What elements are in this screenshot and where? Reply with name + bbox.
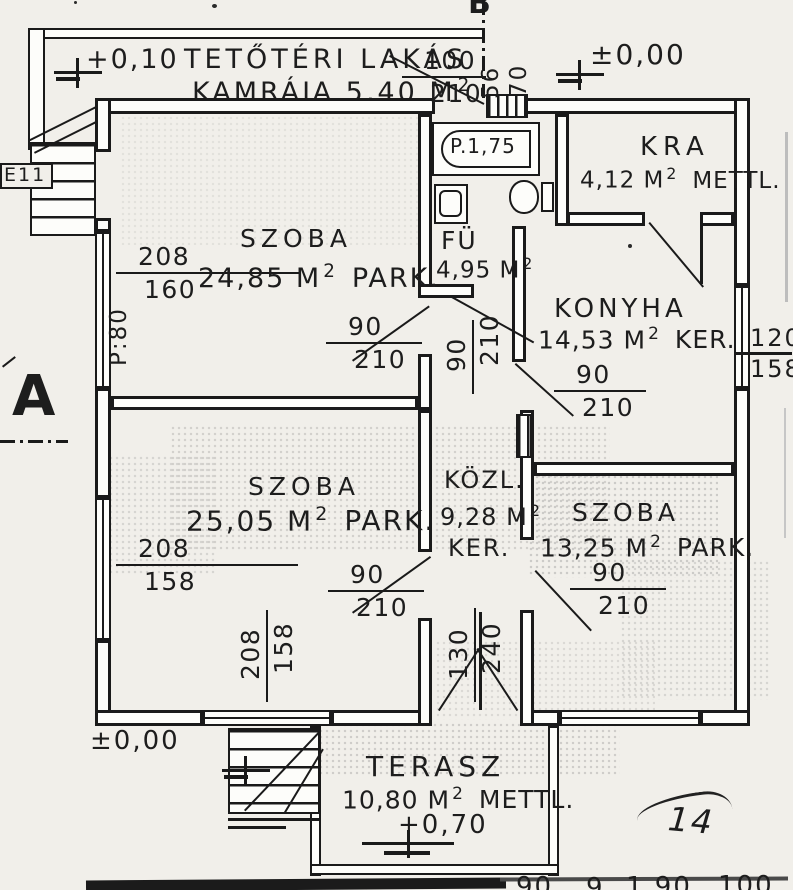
stair-edge-line [228, 818, 320, 821]
wall-segment [331, 710, 432, 726]
wall-segment [418, 618, 432, 726]
wall-segment [534, 462, 734, 476]
room-name-kozl: KÖZL. [444, 468, 525, 493]
footer-fragment: 1,90 [626, 874, 692, 890]
room-name-szoba3: SZOBA [572, 500, 679, 526]
scan-speck [628, 244, 632, 248]
dimension-label-parapet: P:80 [106, 307, 132, 366]
door-leaf [700, 222, 703, 284]
scan-bottom-band [86, 878, 506, 890]
dimension-label-entry-step: 56 [478, 66, 504, 99]
window-symbol [734, 286, 750, 388]
section-line-a [0, 440, 68, 443]
room-area-szoba1: 24,85 M2PARK. [198, 262, 440, 293]
wall-segment [95, 98, 111, 152]
room-name-szoba2: SZOBA [248, 474, 360, 500]
wall-segment [95, 388, 111, 498]
scan-edge-artifact [784, 408, 786, 538]
room-name-kra: KRA [640, 134, 710, 161]
dimension-label-door: 90210 [444, 320, 502, 394]
wall-segment [700, 710, 750, 726]
stairs-top-left [30, 142, 96, 236]
level-value: +0,10 [86, 46, 179, 74]
room-area-kra: 4,12 M2METTL. [580, 166, 781, 193]
toilet-bowl [509, 180, 539, 214]
section-marker-a: A [12, 368, 55, 427]
section-marker-b: B [468, 0, 493, 20]
scan-edge-artifact [785, 132, 788, 302]
entry-door-label: E11 [0, 163, 53, 189]
stair-edge-line [228, 826, 286, 829]
wall-segment [95, 218, 111, 232]
room-name-szoba1: SZOBA [240, 226, 352, 252]
scan-speck [74, 1, 77, 4]
wall-jamb-hatch [516, 414, 532, 458]
level-marker-line [407, 830, 410, 858]
wall-segment [700, 212, 734, 226]
dimension-label-door: 90210 [554, 362, 646, 420]
level-value: ±0,00 [90, 728, 180, 755]
footer-fragment: 90 [516, 874, 553, 890]
room-area-fu: 4,95 M2 [436, 256, 548, 283]
wall-segment [512, 226, 526, 362]
level-value: ±0,00 [590, 40, 686, 69]
room-area-szoba3: 13,25 M2PARK. [540, 534, 754, 562]
window-symbol [95, 498, 111, 640]
dimension-label-terrace-door: 130240 [446, 608, 504, 702]
level-marker-icon [222, 756, 270, 786]
wall-segment [95, 710, 203, 726]
dimension-label-entry-door: 100210 [402, 48, 486, 106]
room-name-fu: FÜ [441, 228, 478, 254]
room-area-szoba2: 25,05 M2PARK. [186, 504, 435, 536]
window-symbol [203, 710, 331, 726]
dimension-label-door: 90210 [328, 562, 424, 620]
wall-segment [492, 98, 750, 114]
level-value: +0,70 [398, 812, 488, 839]
dimension-label-window: 158 [750, 357, 793, 382]
wall-segment [567, 212, 645, 226]
page-number: 14 [667, 802, 716, 841]
wall-segment [555, 114, 569, 226]
room-area-konyha: 14,53 M2KER. [538, 326, 736, 354]
bathtub-label: P.1,75 [450, 136, 516, 157]
footer-fragment: 100 [718, 873, 774, 890]
dimension-label-door: 90210 [326, 314, 422, 372]
dimension-label-entry-step: 70 [506, 64, 532, 97]
scan-speck [212, 4, 217, 8]
dimension-label-window: 208158 [238, 610, 296, 702]
wall-segment [111, 396, 418, 410]
room-name-terasz: TERASZ [366, 752, 505, 781]
room-name-konyha: KONYHA [554, 296, 687, 323]
room-area-kozl: 9,28 M2 [440, 502, 544, 530]
dimension-label-door: 90210 [570, 560, 666, 618]
wall-segment [520, 610, 534, 726]
wall-segment [95, 98, 435, 114]
wall-segment [28, 28, 484, 39]
toilet-tank [541, 182, 554, 212]
dimension-label-window: 208158 [116, 536, 298, 594]
window-symbol [560, 710, 700, 726]
dimension-label-window: 120 [750, 326, 793, 351]
footer-fragment: 9 [586, 875, 605, 890]
door-swing [648, 222, 704, 288]
sink-basin [439, 190, 462, 217]
floor-plan-scan: +0,10 TETŐTÉRI LAKÁS KAMRÁJA 5,40 M2 B ±… [0, 0, 793, 890]
room-floor-kozl: KER. [448, 536, 510, 561]
